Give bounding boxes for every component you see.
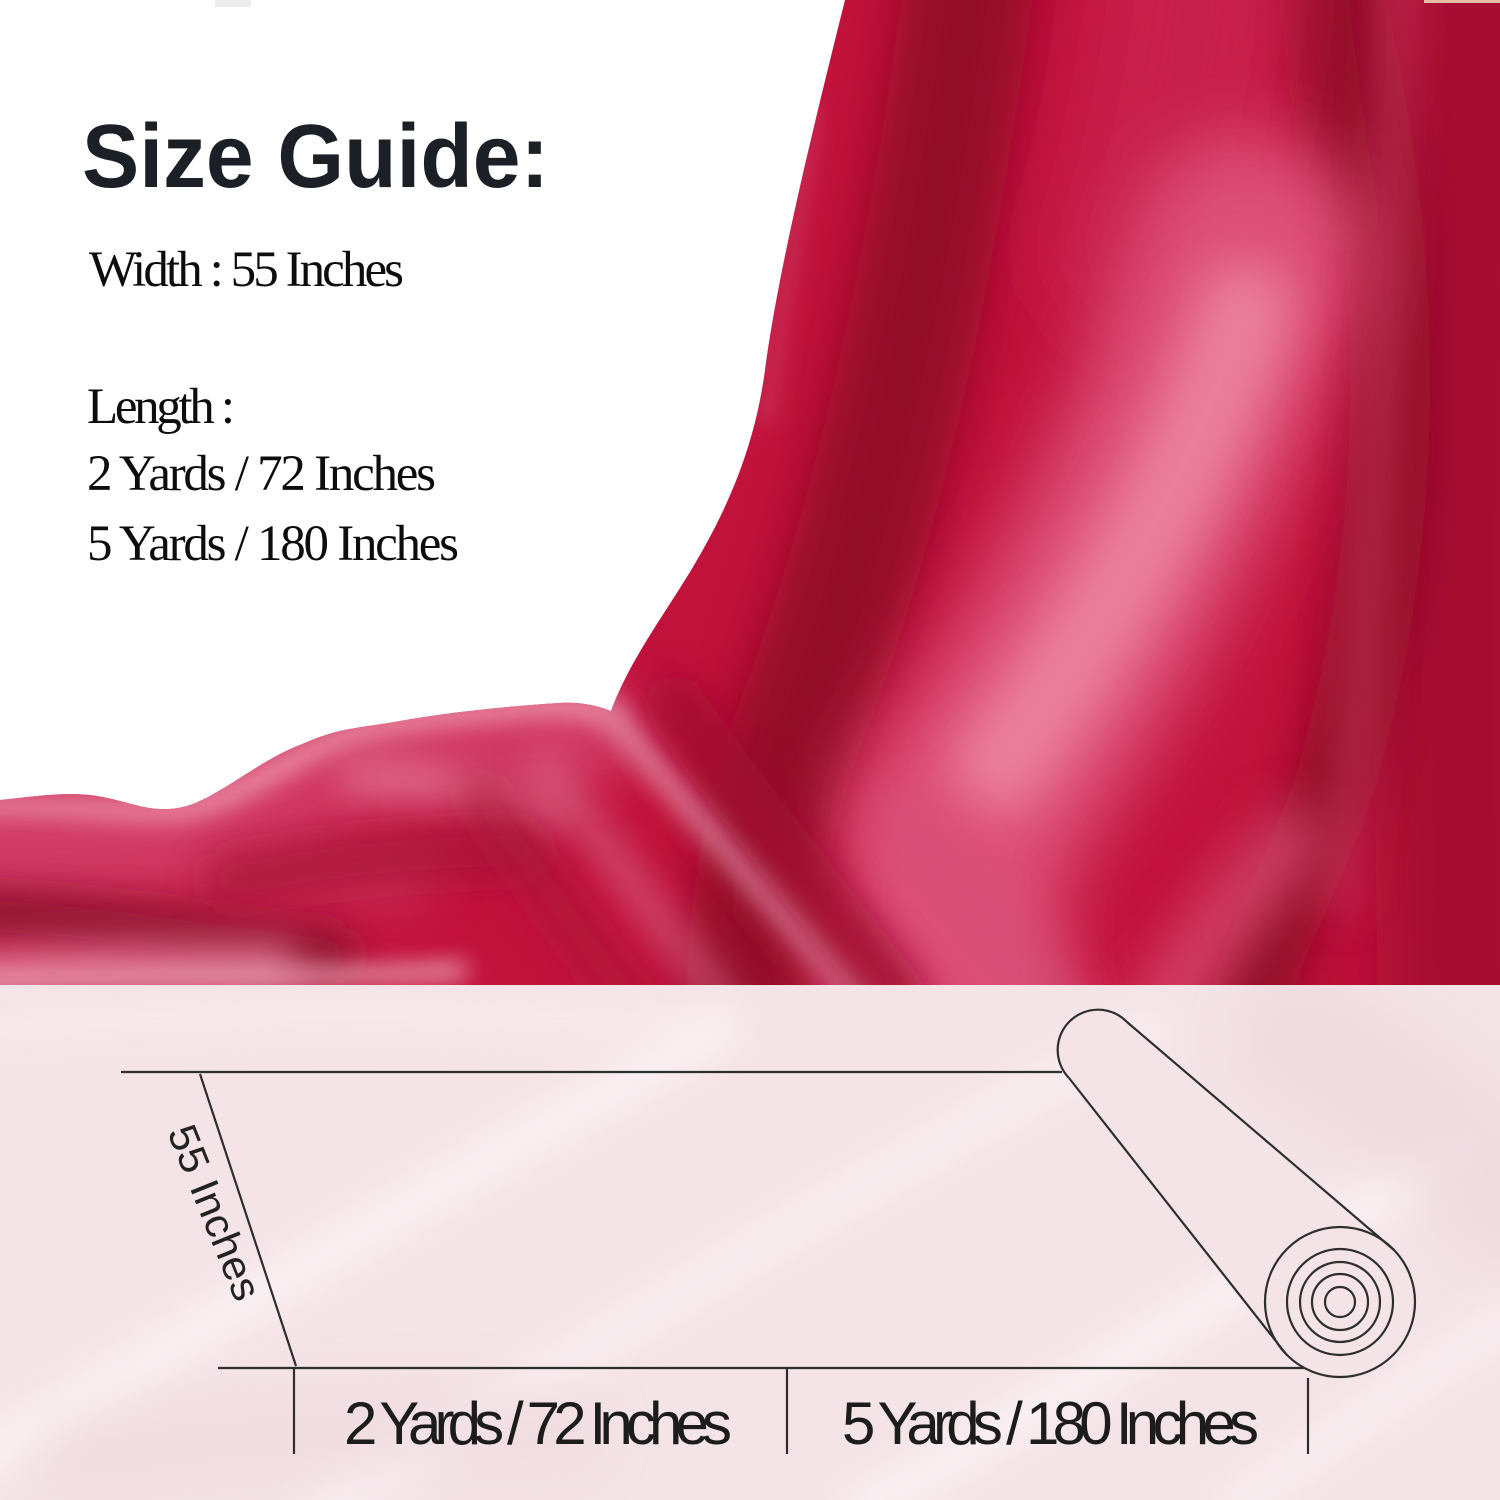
svg-text:Size Guide:: Size Guide: bbox=[82, 107, 549, 207]
svg-text:Length :: Length : bbox=[87, 379, 235, 435]
svg-text:5 Yards / 180 Inches: 5 Yards / 180 Inches bbox=[87, 516, 459, 572]
svg-text:2 Yards / 72 Inches: 2 Yards / 72 Inches bbox=[87, 446, 436, 502]
svg-text:2 Yards / 72 Inches: 2 Yards / 72 Inches bbox=[344, 1390, 732, 1457]
svg-text:5 Yards / 180 Inches: 5 Yards / 180 Inches bbox=[842, 1390, 1259, 1457]
svg-text:Width : 55 Inches: Width : 55 Inches bbox=[89, 242, 404, 298]
